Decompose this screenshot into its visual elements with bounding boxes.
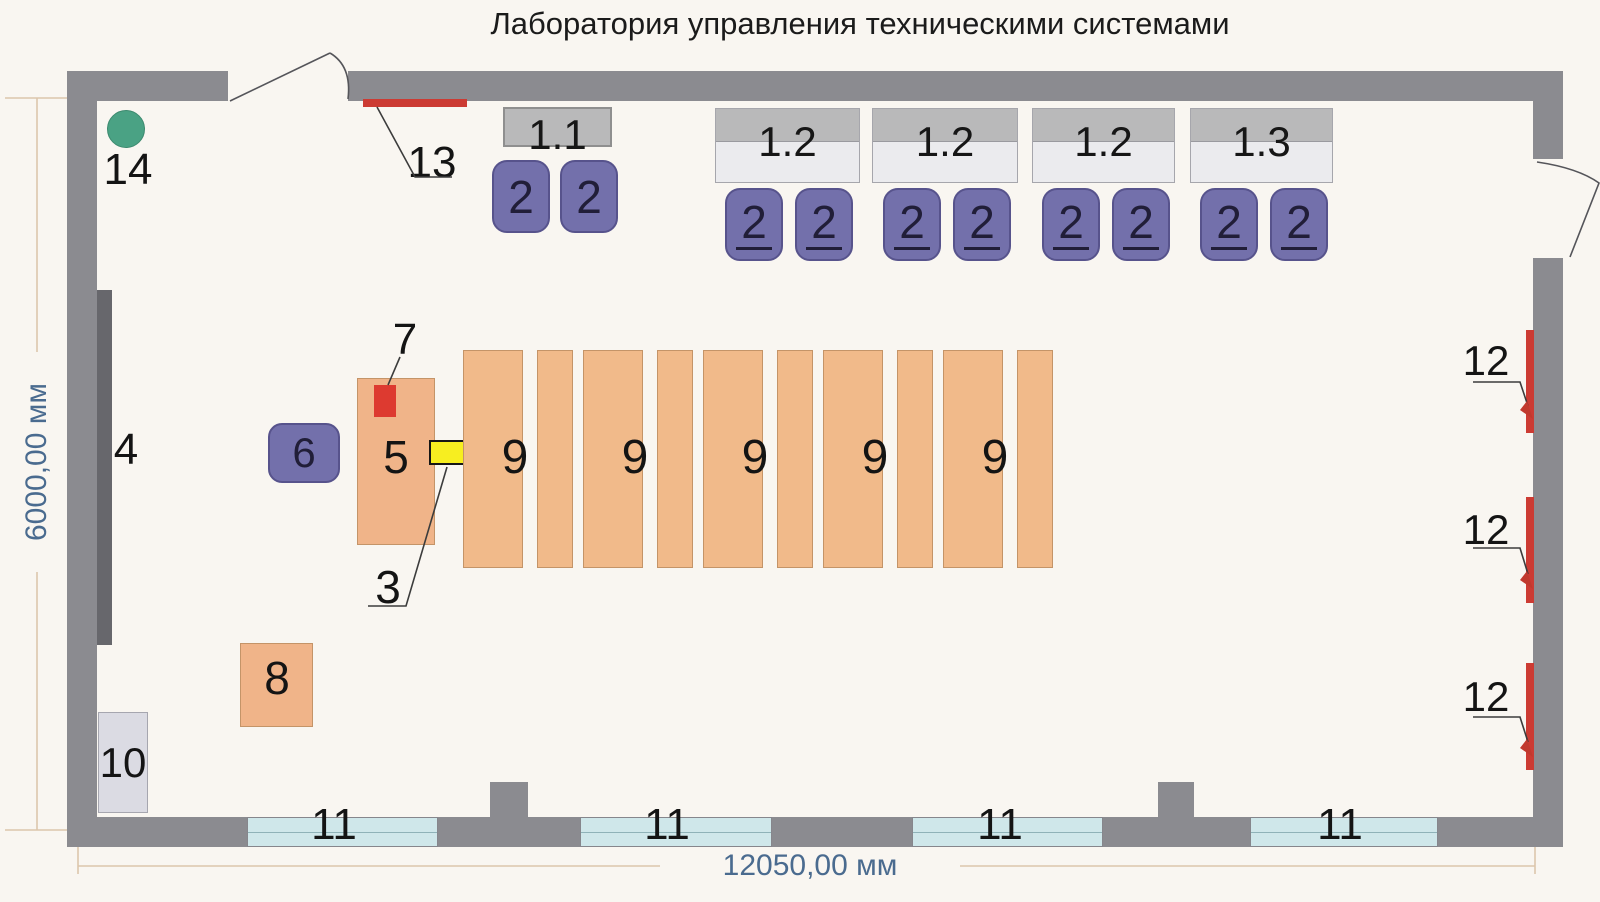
teacher-chair: 6 [268,423,340,483]
chair-label: 2 [508,174,534,220]
bench-strip-narrow [897,350,933,568]
chair-label: 2 [964,199,1000,250]
table-1-2-b: 1.2 [872,108,1018,183]
bench-label: 9 [493,434,537,482]
table-label: 1.2 [873,121,1017,163]
green-circle-label: 14 [100,148,156,192]
leader-12c [1473,717,1528,742]
teacher-chair-label: 6 [292,432,315,474]
bench-strip-narrow [777,350,813,568]
plan-title: Лаборатория управления техническими сист… [120,6,1600,42]
bench-label: 9 [613,434,657,482]
window-label: 11 [1300,803,1380,847]
chair-label: 2 [806,199,842,250]
wall-left [67,71,97,847]
bench-label: 9 [733,434,777,482]
bench-group: 9 [583,350,693,568]
chair: 2 [883,188,941,261]
pillar-right [1158,782,1194,818]
floor-plan: Лаборатория управления техническими сист… [0,0,1600,902]
bench-label: 9 [973,434,1017,482]
wall-right-bottom-segment [1533,258,1563,847]
radiator-label: 12 [1458,676,1514,718]
yellow-device-label: 3 [366,564,410,610]
chair-label: 2 [576,174,602,220]
window-label: 11 [960,803,1040,847]
chair-label: 2 [1123,199,1159,250]
bench-group: 9 [943,350,1053,568]
table-label: 1.3 [1191,121,1332,163]
bench-group: 9 [823,350,933,568]
window-label: 11 [294,803,374,847]
green-circle-marker [107,110,145,148]
table-1-3: 1.3 [1190,108,1333,183]
red-device [374,385,396,417]
bench-strip-narrow [657,350,693,568]
chair: 2 [725,188,783,261]
door-top-arc-icon [330,53,349,99]
chair-label: 2 [736,199,772,250]
side-table-label: 8 [254,655,300,701]
door-right-leaf-icon [1537,162,1599,257]
chair: 2 [492,160,550,233]
radiator-label: 12 [1458,509,1514,551]
radiator [1526,330,1534,433]
bench-strip-narrow [1017,350,1053,568]
top-heater-strip [363,99,467,107]
table-1-2-a: 1.2 [715,108,860,183]
chair: 2 [560,160,618,233]
pillar-left [490,782,528,818]
radiator [1526,663,1534,770]
leader-12a [1473,382,1528,406]
table-label: 1.1 [505,114,610,156]
top-heater-label: 13 [406,141,458,185]
chair-label: 2 [1281,199,1317,250]
chair-label: 2 [1053,199,1089,250]
table-1-2-c: 1.2 [1032,108,1175,183]
door-top-leaf-icon [230,53,330,101]
chair: 2 [1112,188,1170,261]
chair: 2 [1200,188,1258,261]
red-device-label: 7 [390,318,420,362]
wall-right-top-segment [1533,71,1563,159]
chair: 2 [1270,188,1328,261]
radiator-label: 12 [1458,340,1514,382]
chair-label: 2 [894,199,930,250]
window-label: 11 [627,803,707,847]
chair: 2 [953,188,1011,261]
table-1-1: 1.1 [503,107,612,147]
bench-strip-narrow [537,350,573,568]
bench-group: 9 [703,350,813,568]
radiator [1526,497,1534,603]
table-label: 1.2 [1033,121,1174,163]
bench-label: 9 [853,434,897,482]
chair-label: 2 [1211,199,1247,250]
table-label: 1.2 [716,121,859,163]
wall-board-label: 4 [106,428,146,472]
dim-width-label: 12050,00 мм [660,851,960,881]
teacher-desk-label: 5 [376,434,416,480]
chair: 2 [1042,188,1100,261]
dim-height-label: 6000,00 мм [22,352,52,572]
cabinet-label: 10 [96,742,150,784]
chair: 2 [795,188,853,261]
wall-top-right-segment [348,71,1563,101]
bench-group: 9 [463,350,573,568]
